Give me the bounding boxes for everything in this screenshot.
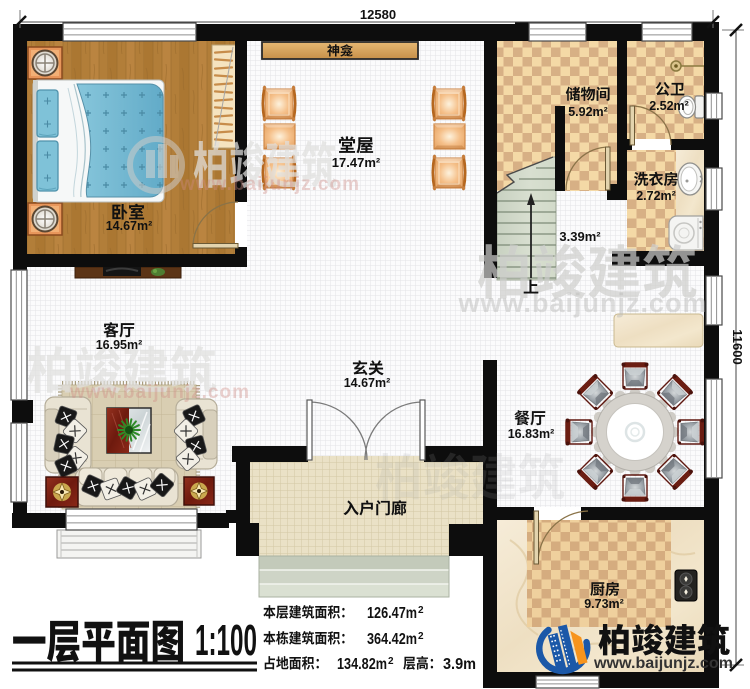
- svg-text:16.95m²: 16.95m²: [96, 338, 143, 352]
- svg-text:3.9m: 3.9m: [443, 656, 476, 673]
- svg-text:2.52m²: 2.52m²: [649, 99, 689, 113]
- svg-text:2: 2: [418, 631, 424, 642]
- svg-text:2: 2: [418, 605, 424, 616]
- svg-text:2: 2: [388, 656, 394, 667]
- svg-text:134.82m: 134.82m: [337, 656, 387, 673]
- svg-text:1:100: 1:100: [195, 616, 257, 665]
- svg-text:126.47m: 126.47m: [367, 605, 417, 622]
- svg-text:5.92m²: 5.92m²: [568, 105, 608, 119]
- svg-text:16.83m²: 16.83m²: [508, 427, 555, 441]
- svg-text:14.67m²: 14.67m²: [106, 219, 153, 233]
- svg-text:www.baijunjz.com: www.baijunjz.com: [457, 288, 707, 318]
- svg-text:14.67m²: 14.67m²: [344, 376, 391, 390]
- svg-text:11600: 11600: [730, 329, 745, 364]
- svg-text:2.72m²: 2.72m²: [636, 189, 676, 203]
- svg-text:3.39m²: 3.39m²: [559, 229, 601, 244]
- svg-text:www.baijunjz.com: www.baijunjz.com: [593, 655, 733, 672]
- svg-text:364.42m: 364.42m: [367, 631, 417, 648]
- svg-text:www.baijunjz.com: www.baijunjz.com: [69, 382, 250, 403]
- svg-text:www.baijunjz.com: www.baijunjz.com: [179, 174, 360, 195]
- svg-text:17.47m²: 17.47m²: [332, 155, 381, 170]
- svg-text:12580: 12580: [360, 7, 396, 22]
- svg-text:9.73m²: 9.73m²: [584, 597, 624, 611]
